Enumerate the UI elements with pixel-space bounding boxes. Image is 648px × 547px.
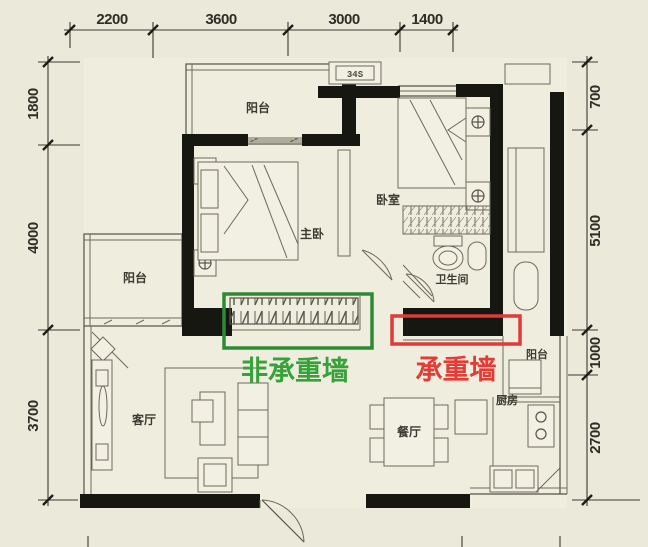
- label-dining-room: 餐厅: [397, 424, 421, 439]
- non-load-bearing-label: 非承重墙: [241, 356, 349, 386]
- label-bathroom: 卫生间: [436, 272, 469, 286]
- dim-top-1400: 1400: [411, 11, 443, 28]
- dim-right-700: 700: [587, 85, 604, 109]
- label-balcony-right: 阳台: [526, 347, 548, 361]
- dim-left-4000: 4000: [25, 222, 42, 254]
- floor-plan-page: 2200 3600 3000 1400 1800 4000 3700 700 5…: [0, 0, 648, 547]
- unit-badge-label: 34S: [347, 70, 364, 80]
- label-bedroom: 卧室: [376, 192, 400, 207]
- wardrobe: [230, 298, 358, 324]
- dim-right-1000: 1000: [587, 337, 604, 369]
- dim-top-3600: 3600: [205, 11, 237, 28]
- dim-top-3000: 3000: [328, 11, 360, 28]
- label-kitchen: 厨房: [496, 393, 518, 407]
- label-balcony-top: 阳台: [246, 100, 270, 115]
- load-bearing-label: 承重墙: [416, 355, 497, 385]
- label-master-bedroom: 主卧: [300, 226, 324, 241]
- floor-plan-svg: 2200 3600 3000 1400 1800 4000 3700 700 5…: [0, 0, 648, 547]
- unit-badge: 34S: [329, 62, 381, 84]
- dim-left-3700: 3700: [25, 400, 42, 432]
- bathroom-vanity: [403, 206, 490, 234]
- dim-left-1800: 1800: [25, 88, 42, 120]
- label-living-room: 客厅: [131, 412, 156, 427]
- dim-right-5100: 5100: [587, 215, 604, 247]
- label-balcony-left: 阳台: [123, 270, 147, 285]
- dim-right-2700: 2700: [587, 422, 604, 454]
- dim-top-2200: 2200: [96, 11, 128, 28]
